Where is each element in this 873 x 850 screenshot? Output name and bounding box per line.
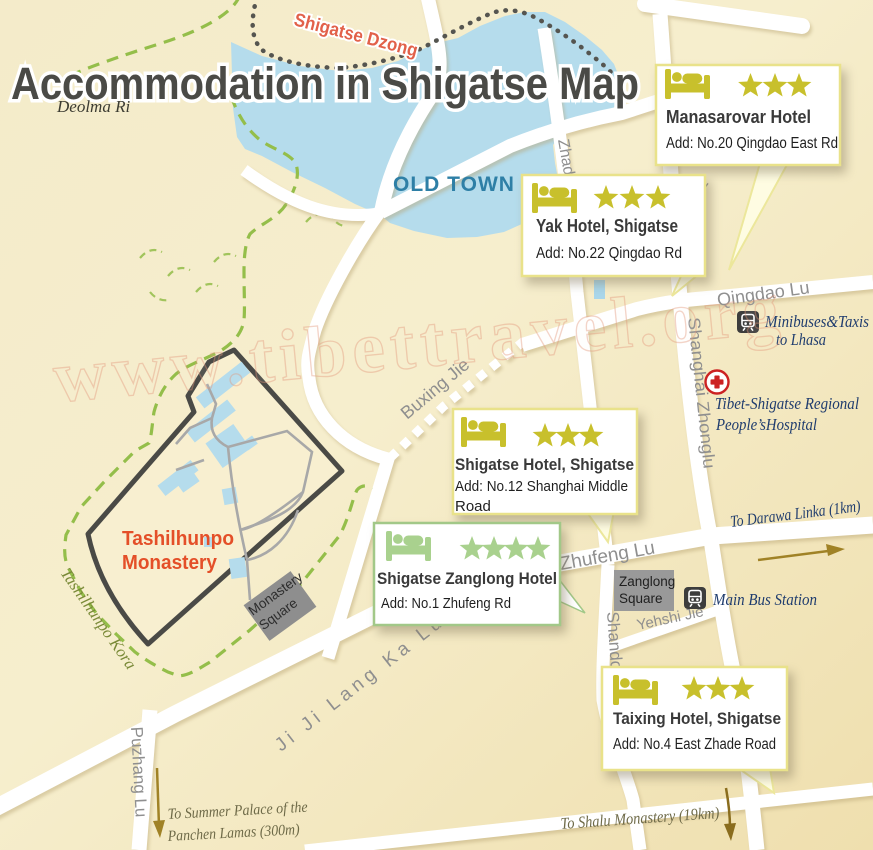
svg-text:Yak Hotel, Shigatse: Yak Hotel, Shigatse — [536, 216, 678, 236]
svg-text:Tashilhunpo: Tashilhunpo — [122, 528, 234, 550]
svg-text:Add: No.20 Qingdao East Rd: Add: No.20 Qingdao East Rd — [666, 135, 838, 152]
svg-text:People’sHospital: People’sHospital — [715, 415, 817, 434]
svg-text:Tibet-Shigatse Regional: Tibet-Shigatse Regional — [715, 394, 859, 413]
svg-text:Manasarovar Hotel: Manasarovar Hotel — [666, 107, 811, 127]
svg-text:Square: Square — [619, 591, 663, 606]
svg-text:Road: Road — [455, 498, 491, 515]
svg-text:Add: No.4 East Zhade Road: Add: No.4 East Zhade Road — [613, 736, 776, 753]
svg-text:Taixing Hotel, Shigatse: Taixing Hotel, Shigatse — [613, 709, 781, 728]
svg-text:Zanglong: Zanglong — [619, 574, 675, 589]
svg-text:Deolma Ri: Deolma Ri — [56, 97, 130, 116]
svg-text:Main Bus Station: Main Bus Station — [712, 590, 817, 609]
svg-text:OLD TOWN: OLD TOWN — [393, 173, 515, 196]
svg-text:Shigatse Zanglong Hotel: Shigatse Zanglong Hotel — [377, 570, 557, 588]
svg-text:Add: No.12 Shanghai Middle: Add: No.12 Shanghai Middle — [455, 478, 628, 495]
svg-text:Add: No.22 Qingdao Rd: Add: No.22 Qingdao Rd — [536, 245, 682, 262]
svg-text:Add: No.1 Zhufeng Rd: Add: No.1 Zhufeng Rd — [381, 595, 511, 612]
svg-text:Monastery: Monastery — [122, 552, 218, 574]
svg-text:Shigatse Hotel, Shigatse: Shigatse Hotel, Shigatse — [455, 456, 634, 474]
